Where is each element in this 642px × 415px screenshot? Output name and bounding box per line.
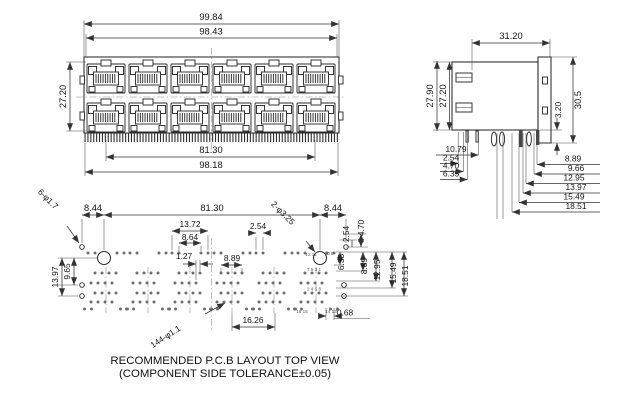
dim-right-top-a: 2.54 bbox=[341, 226, 351, 243]
pcb-hole-callouts: 6-φ1.7 2-φ3.25 144-φ1.1 bbox=[36, 187, 315, 350]
rj45-jack bbox=[255, 60, 293, 93]
dim-pin-12-95: 12.95 bbox=[564, 173, 585, 183]
dim-pin-15-49: 15.49 bbox=[564, 192, 585, 202]
rj45-jack bbox=[87, 99, 125, 132]
dim-pin-18-51: 18.51 bbox=[566, 201, 587, 211]
dim-row-inner: 8.64 bbox=[182, 232, 199, 242]
jack-array bbox=[87, 60, 335, 132]
latch-slots bbox=[456, 73, 472, 112]
dim-front-pin-span: 81.30 bbox=[199, 145, 222, 155]
pin-label-10-9: 10 9 bbox=[325, 251, 334, 256]
rj45-jack bbox=[297, 60, 335, 93]
pin-label-14-13: 14 13 bbox=[325, 309, 337, 314]
dim-left-hole-low: 13.97 bbox=[50, 266, 60, 287]
dim-stagger: 1.27 bbox=[176, 251, 193, 261]
dim-edge: 0.68 bbox=[337, 308, 354, 318]
dim-right-top-b: 4.70 bbox=[356, 220, 366, 237]
dim-pin-13-97: 13.97 bbox=[566, 182, 587, 192]
rj45-jack bbox=[87, 60, 125, 93]
dim-group-width: 8.89 bbox=[224, 253, 241, 263]
caption: RECOMMENDED P.C.B LAYOUT TOP VIEW (COMPO… bbox=[110, 355, 339, 380]
rj45-jack bbox=[213, 99, 251, 132]
pin-label-even: 2 4 6 8 bbox=[307, 287, 321, 292]
side-lower-dimensions: 10.79 2.54 4.70 6.35 8.89 9.66 12.95 13.… bbox=[436, 132, 600, 219]
dim-side-flange-step: 3.20 bbox=[553, 102, 563, 119]
pin-label-16-15: 16 15 bbox=[296, 309, 308, 314]
dim-side-height-inner: 27.20 bbox=[438, 84, 448, 107]
dim-pcb-right-offset: 8.44 bbox=[324, 203, 342, 213]
dim-side-flange-height: 30.5 bbox=[573, 91, 583, 109]
corner-hole bbox=[342, 283, 347, 288]
side-view: 31.20 27.90 27.20 30.5 3.20 10.79 2 bbox=[425, 31, 600, 219]
pcb-footprints bbox=[83, 252, 339, 314]
flange-hole bbox=[543, 77, 548, 84]
dim-front-height: 27.20 bbox=[58, 85, 68, 108]
caption-line1: RECOMMENDED P.C.B LAYOUT TOP VIEW bbox=[110, 355, 339, 367]
side-pins bbox=[466, 130, 539, 147]
pcb-inner-dimensions: 13.72 8.64 2.54 1.27 8.89 16.26 bbox=[172, 219, 275, 331]
rj45-jack bbox=[171, 60, 209, 93]
mount-hole-left bbox=[98, 252, 111, 265]
dim-bottom-span: 16.26 bbox=[243, 315, 264, 325]
dim-right-6-35: 6.35 bbox=[336, 254, 346, 271]
pin-label-12-11: 12 11 bbox=[305, 252, 317, 257]
dim-right-12-95: 12.95 bbox=[372, 259, 382, 280]
drawing-canvas: 99.84 98.43 27.20 81.30 98.18 bbox=[0, 0, 642, 415]
dim-side-height-outer: 27.90 bbox=[425, 84, 435, 107]
jack-footprint bbox=[125, 252, 171, 314]
dim-pcb-left-offset: 8.44 bbox=[84, 203, 102, 213]
jack-footprint bbox=[83, 252, 129, 314]
dim-side-depth: 31.20 bbox=[499, 31, 522, 41]
dim-pcb-mount-span: 81.30 bbox=[200, 203, 223, 213]
corner-hole bbox=[80, 294, 85, 299]
dim-left-hole-mid: 9.65 bbox=[62, 263, 72, 280]
jack-footprint bbox=[293, 252, 339, 314]
dim-pin-8-89: 8.89 bbox=[565, 154, 582, 164]
corner-hole bbox=[80, 245, 85, 250]
label-corner-holes: 6-φ1.7 bbox=[36, 187, 61, 212]
side-body-outline bbox=[452, 62, 538, 130]
label-pin-holes: 144-φ1.1 bbox=[148, 323, 182, 350]
flange-hole bbox=[543, 107, 548, 114]
caption-line2: (COMPONENT SIDE TOLERANCE±0.05) bbox=[119, 368, 331, 380]
pcb-left-dimensions: 9.65 13.97 bbox=[50, 258, 98, 296]
dim-front-overall-bottom: 98.18 bbox=[199, 160, 222, 170]
rj45-jack bbox=[213, 60, 251, 93]
dim-row-outer: 13.72 bbox=[180, 219, 201, 229]
engineering-drawing: 99.84 98.43 27.20 81.30 98.18 bbox=[0, 0, 642, 415]
front-dimensions: 99.84 98.43 27.20 81.30 98.18 bbox=[58, 12, 339, 176]
dim-pitch: 2.54 bbox=[250, 221, 267, 231]
rj45-jack bbox=[297, 99, 335, 132]
dim-pin-6-35: 6.35 bbox=[443, 169, 460, 179]
dim-right-8-89: 8.89 bbox=[359, 258, 369, 275]
rj45-jack bbox=[129, 60, 167, 93]
dim-front-total-width: 99.84 bbox=[199, 12, 222, 22]
dim-right-15-49: 15.49 bbox=[388, 262, 398, 283]
dim-right-18-51: 18.51 bbox=[400, 265, 410, 286]
pcb-top-dimensions: 8.44 81.30 8.44 bbox=[82, 203, 346, 250]
rj45-jack bbox=[171, 99, 209, 132]
dim-front-body-width: 98.43 bbox=[199, 27, 222, 37]
corner-hole bbox=[80, 283, 85, 288]
label-mount-holes: 2-φ3.25 bbox=[269, 199, 297, 227]
pin-label-odd: 7 5 3 1 bbox=[307, 267, 321, 272]
rj45-jack bbox=[255, 99, 293, 132]
rj45-jack bbox=[129, 99, 167, 132]
jack-footprint bbox=[251, 252, 297, 314]
pcb-layout-view: 12 11 10 9 7 5 3 1 2 4 6 8 16 15 14 13 8… bbox=[36, 187, 410, 350]
front-view: 99.84 98.43 27.20 81.30 98.18 bbox=[58, 12, 346, 176]
pcb-right-dimensions: 2.54 4.70 6.35 8.89 12.95 15.49 18.51 0.… bbox=[318, 220, 410, 320]
dim-pin-9-66: 9.66 bbox=[568, 163, 585, 173]
